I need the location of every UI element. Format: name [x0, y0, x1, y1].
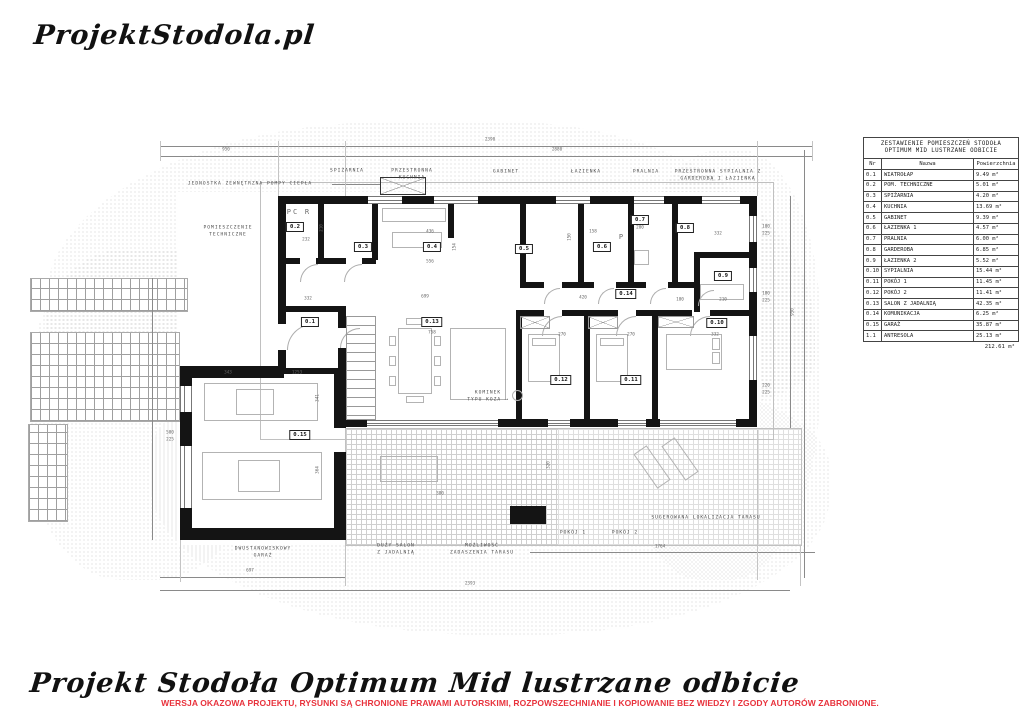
wall-segment [180, 366, 192, 386]
window [749, 268, 757, 292]
dimension-label: 556 [426, 260, 434, 265]
table-cell: 0.4 [864, 202, 882, 213]
furniture [434, 376, 441, 386]
room-number-badge: 0.10 [706, 318, 727, 328]
wall-segment [616, 282, 646, 288]
furniture [389, 356, 396, 366]
equipment-label: P [619, 233, 625, 241]
table-header: Nr [864, 159, 882, 170]
dimension-label: 2393 [465, 582, 475, 587]
dimension-label: 420 [579, 296, 587, 301]
dimension-label: 225 [762, 391, 770, 396]
table-row: 0.13SALON Z JADALNIĄ42.35 m² [864, 299, 1019, 310]
window [749, 336, 757, 380]
wall-segment [562, 282, 594, 288]
plan-annotation: MOŻLIWOŚĆ ZADASZENIA TARASU [450, 543, 514, 558]
dimension-label: 210 [719, 298, 727, 303]
extension-line [278, 141, 279, 196]
window [749, 216, 757, 242]
table-cell: 1.1 [864, 331, 882, 342]
dimension-label: 436 [426, 230, 434, 235]
dimension-label: 220 [762, 384, 770, 389]
table-row: 0.9ŁAZIENKA 25.52 m² [864, 256, 1019, 267]
table-cell: ANTRESOLA [882, 331, 974, 342]
table-cell: 0.9 [864, 256, 882, 267]
dimension-label: 1253 [292, 371, 302, 376]
table-cell: 0.2 [864, 180, 882, 191]
extension-line [800, 546, 801, 586]
table-cell: SALON Z JADALNIĄ [882, 299, 974, 310]
terrace-glazing [548, 420, 570, 426]
furniture [380, 456, 438, 482]
room-number-badge: 0.9 [714, 271, 732, 281]
table-cell: 0.14 [864, 309, 882, 320]
dimension-label: 100 [762, 225, 770, 230]
dimension-label: 332 [714, 232, 722, 237]
table-cell: 0.3 [864, 191, 882, 202]
wall-segment [338, 306, 346, 328]
dimension-label: 332 [304, 297, 312, 302]
dimension-label: 158 [589, 230, 597, 235]
dimension-label: 225 [166, 438, 174, 443]
extension-line [757, 430, 758, 580]
table-cell: 42.35 m² [974, 299, 1019, 310]
table-row: 0.15GARAŻ35.87 m² [864, 320, 1019, 331]
extension-line [345, 546, 346, 586]
wall-segment [672, 204, 678, 288]
furniture [600, 338, 624, 346]
dimension-line [332, 184, 380, 185]
room-number-badge: 0.13 [421, 317, 442, 327]
dimension-label: 343 [224, 371, 232, 376]
table-cell: ŁAZIENKA 2 [882, 256, 974, 267]
terrace-glazing [367, 420, 498, 426]
table-cell: SYPIALNIA [882, 266, 974, 277]
dimension-label: 699 [421, 295, 429, 300]
dimension-label: 758 [428, 331, 436, 336]
wall-segment [448, 204, 454, 238]
table-cell: 6.00 m² [974, 234, 1019, 245]
wall-segment [345, 419, 367, 427]
wall-segment [334, 452, 346, 540]
table-cell: GABINET [882, 213, 974, 224]
dimension-label: 150 [568, 233, 573, 241]
table-cell: 0.15 [864, 320, 882, 331]
table-cell: KOMUNIKACJA [882, 309, 974, 320]
extension-line [180, 540, 181, 582]
wall-segment [736, 419, 757, 427]
plan-annotation: SUGEROWANA LOKALIZACJA TARASU [651, 514, 760, 521]
table-total-area: 212.61 m² [863, 342, 1019, 350]
table-row: 0.5GABINET9.39 m² [864, 213, 1019, 224]
dimension-label: 225 [762, 232, 770, 237]
dimension-line [804, 150, 805, 578]
table-cell: WIATROŁAP [882, 170, 974, 181]
walkway-paving [30, 278, 188, 312]
table-cell: GARDEROBA [882, 245, 974, 256]
table-row: 0.2POM. TECHNICZNE5.01 m² [864, 180, 1019, 191]
table-cell: 4.57 m² [974, 223, 1019, 234]
plan-annotation: JEDNOSTKA ZEWNĘTRZNA POMPY CIEPŁA [188, 180, 312, 187]
room-number-badge: 0.8 [676, 223, 694, 233]
table-header: Powierzchnia [974, 159, 1019, 170]
dimension-label: 225 [762, 299, 770, 304]
dimension-label: 332 [711, 333, 719, 338]
dimension-label: 1764 [655, 545, 665, 550]
dimension-label: 500 [166, 431, 174, 436]
table-cell: 0.11 [864, 277, 882, 288]
dimension-label: 2880 [552, 148, 562, 153]
table-row: 0.14KOMUNIKACJA6.25 m² [864, 309, 1019, 320]
dimension-label: 180 [762, 292, 770, 297]
wall-segment [498, 419, 548, 427]
garage-door-opening [180, 446, 192, 508]
wardrobe [658, 316, 694, 328]
dimension-label: 154 [453, 243, 458, 251]
furniture [434, 336, 441, 346]
room-number-badge: 0.15 [289, 430, 310, 440]
table-row: 0.4KUCHNIA13.69 m² [864, 202, 1019, 213]
plan-annotation: DUŻY SALON Z JADALNIĄ [377, 543, 415, 558]
wall-segment [524, 282, 544, 288]
floor-plan-drawing: JEDNOSTKA ZEWNĘTRZNA POMPY CIEPŁAPOMIESZ… [0, 0, 1024, 724]
table-cell: POKÓJ 1 [882, 277, 974, 288]
equipment-label: R [305, 208, 311, 216]
plan-annotation: PRZESTRONNA SYPIALNIA Z GARDEROBĄ I ŁAZI… [675, 169, 762, 184]
wall-segment [316, 258, 346, 264]
furniture [238, 460, 280, 492]
wall-segment [362, 258, 376, 264]
garage-door-opening [180, 386, 192, 412]
room-number-badge: 0.5 [515, 244, 533, 254]
wall-segment [278, 196, 286, 324]
fireplace-stove [512, 390, 523, 401]
table-cell: ŁAZIENKA 1 [882, 223, 974, 234]
dimension-label: 341 [316, 394, 321, 402]
table-cell: 0.8 [864, 245, 882, 256]
table-cell: 4.20 m² [974, 191, 1019, 202]
wall-segment [646, 419, 660, 427]
dimension-label: 270 [558, 333, 566, 338]
wall-segment [180, 412, 192, 446]
plan-annotation: DWUSTANOWISKOWY GARAŻ [235, 546, 292, 561]
dimension-label: 270 [627, 333, 635, 338]
table-cell: 0.5 [864, 213, 882, 224]
dimension-label: 950 [222, 148, 230, 153]
room-number-badge: 0.6 [593, 242, 611, 252]
furniture [712, 352, 720, 364]
dimension-label: 232 [302, 238, 310, 243]
dimension-label: 320 [547, 461, 552, 469]
staircase [346, 316, 376, 420]
wall-segment [286, 306, 338, 312]
wall-segment [278, 196, 757, 204]
table-row: 0.8GARDEROBA6.85 m² [864, 245, 1019, 256]
table-cell: 6.25 m² [974, 309, 1019, 320]
side-paving [28, 424, 68, 522]
room-number-badge: 0.1 [301, 317, 319, 327]
extension-line [812, 141, 813, 161]
table-cell: 15.44 m² [974, 266, 1019, 277]
plan-annotation: ŁAZIENKA [571, 168, 601, 175]
furniture [406, 396, 424, 403]
furniture [634, 250, 649, 265]
room-number-badge: 0.12 [550, 375, 571, 385]
dimension-line [530, 552, 815, 553]
wall-segment [570, 419, 618, 427]
dimension-label: 200 [636, 226, 644, 231]
table-cell: 0.13 [864, 299, 882, 310]
table-cell: 0.7 [864, 234, 882, 245]
table-cell: 5.52 m² [974, 256, 1019, 267]
plan-annotation: KOMINEK TYPU KOZA ⟶ [467, 390, 508, 405]
window [434, 196, 478, 204]
table-header: Nazwa [882, 159, 974, 170]
room-number-badge: 0.2 [286, 222, 304, 232]
wardrobe [588, 316, 618, 329]
dimension-line [160, 590, 790, 591]
table-row: 0.1WIATROŁAP9.49 m² [864, 170, 1019, 181]
table-row: 0.12POKÓJ 211.41 m² [864, 288, 1019, 299]
room-number-badge: 0.3 [354, 242, 372, 252]
table-cell: 6.85 m² [974, 245, 1019, 256]
copyright-disclaimer: WERSJA OKAZOWA PROJEKTU, RYSUNKI SĄ CHRO… [120, 698, 920, 708]
equipment-label: PC [287, 208, 299, 216]
table-cell: 11.41 m² [974, 288, 1019, 299]
plan-annotation: PRALNIA [633, 168, 659, 175]
wall-segment [710, 310, 749, 316]
terrace-outline [345, 428, 802, 546]
driveway-paving [30, 332, 180, 422]
table-cell: 0.6 [864, 223, 882, 234]
room-schedule-table: ZESTAWIENIE POMIESZCZEŃ STODOŁA OPTIMUM … [863, 137, 1019, 350]
table-row: 0.6ŁAZIENKA 14.57 m² [864, 223, 1019, 234]
window [634, 196, 664, 204]
furniture [389, 376, 396, 386]
plan-annotation: GABINET [493, 168, 519, 175]
furniture [434, 356, 441, 366]
terrace-glazing [618, 420, 646, 426]
wardrobe [520, 316, 550, 329]
wall-segment [694, 252, 756, 258]
window [556, 196, 590, 204]
table-cell: KUCHNIA [882, 202, 974, 213]
table-row: 0.10SYPIALNIA15.44 m² [864, 266, 1019, 277]
plan-annotation: POMIESZCZENIE TECHNICZNE [204, 225, 253, 240]
table-row: 1.1ANTRESOLA25.13 m² [864, 331, 1019, 342]
plan-annotation: SPIŻARNIA [330, 167, 364, 174]
dimension-line [160, 156, 812, 157]
wall-segment [372, 204, 378, 260]
dimension-label: 100 [676, 298, 684, 303]
wall-segment [180, 528, 346, 540]
dimension-label: 364 [316, 466, 321, 474]
terrace-glazing [660, 420, 736, 426]
room-number-badge: 0.11 [620, 375, 641, 385]
table-row: 0.7PRALNIA6.00 m² [864, 234, 1019, 245]
table-cell: GARAŻ [882, 320, 974, 331]
dimension-line [160, 146, 812, 147]
table-cell: 0.10 [864, 266, 882, 277]
table-row: 0.11POKÓJ 111.45 m² [864, 277, 1019, 288]
table-cell: 11.45 m² [974, 277, 1019, 288]
wall-segment [286, 258, 300, 264]
furniture [532, 338, 556, 346]
furniture [389, 336, 396, 346]
floor-plan-sheet: ProjektStodola.pl JEDNOSTKA ZEWNĘTRZNA P… [0, 0, 1024, 724]
window [368, 196, 402, 204]
table-cell: 0.1 [864, 170, 882, 181]
plan-annotation: PRZESTRONNA KUCHNIA [391, 168, 432, 183]
table-title: ZESTAWIENIE POMIESZCZEŃ STODOŁA OPTIMUM … [864, 138, 1019, 159]
wall-segment [318, 204, 324, 260]
dimension-label: 697 [246, 569, 254, 574]
furniture [382, 208, 446, 222]
room-number-badge: 0.7 [631, 215, 649, 225]
table-cell: SPIŻARNIA [882, 191, 974, 202]
project-title: Projekt Stodoła Optimum Mid lustrzane od… [28, 668, 801, 699]
wall-segment [510, 506, 546, 524]
table-cell: 5.01 m² [974, 180, 1019, 191]
furniture [398, 328, 432, 394]
room-number-badge: 0.14 [615, 289, 636, 299]
dimension-label: 950 [791, 308, 796, 316]
table-cell: 25.13 m² [974, 331, 1019, 342]
table-cell: POM. TECHNICZNE [882, 180, 974, 191]
plan-annotation: POKÓJ 1 [560, 529, 586, 536]
table-cell: POKÓJ 2 [882, 288, 974, 299]
table-cell: 9.39 m² [974, 213, 1019, 224]
dimension-line [160, 577, 345, 578]
extension-line [160, 141, 161, 161]
plan-annotation: POKÓJ 2 [612, 529, 638, 536]
table-cell: 35.87 m² [974, 320, 1019, 331]
room-number-badge: 0.4 [423, 242, 441, 252]
table-cell: 0.12 [864, 288, 882, 299]
dimension-line [152, 278, 153, 540]
table-cell: 9.49 m² [974, 170, 1019, 181]
dimension-label: 380 [436, 492, 444, 497]
dimension-label: 2390 [485, 138, 495, 143]
wall-segment [668, 282, 694, 288]
furniture [236, 389, 274, 415]
window [702, 196, 740, 204]
dimension-label: 210 [320, 224, 325, 232]
furniture [712, 338, 720, 350]
wall-segment [578, 204, 584, 288]
table-cell: PRALNIA [882, 234, 974, 245]
table-cell: 13.69 m² [974, 202, 1019, 213]
table-row: 0.3SPIŻARNIA4.20 m² [864, 191, 1019, 202]
